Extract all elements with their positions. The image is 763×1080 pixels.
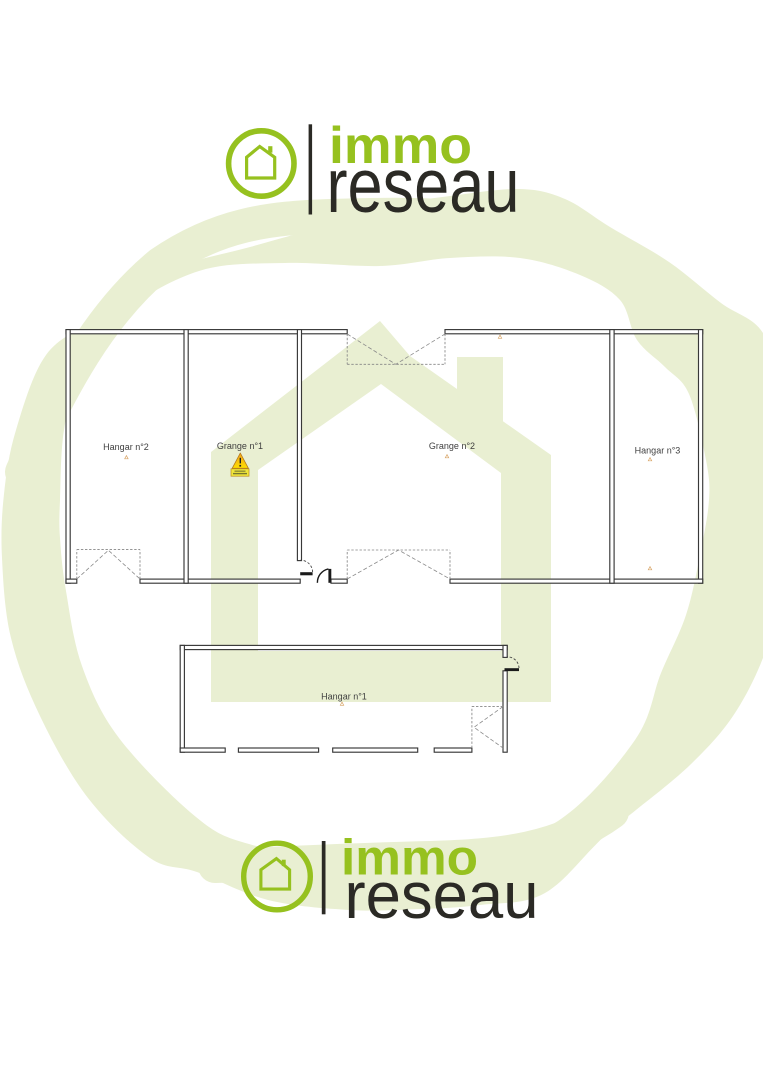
svg-text:reseau: reseau [345,859,539,932]
svg-text:Hangar n°1: Hangar n°1 [321,692,367,702]
svg-text:Grange n°2: Grange n°2 [429,441,475,451]
svg-text:Grange n°1: Grange n°1 [217,441,263,451]
svg-text:Hangar n°3: Hangar n°3 [635,446,681,456]
svg-text:Hangar n°2: Hangar n°2 [103,442,149,452]
svg-text:reseau: reseau [327,143,520,229]
